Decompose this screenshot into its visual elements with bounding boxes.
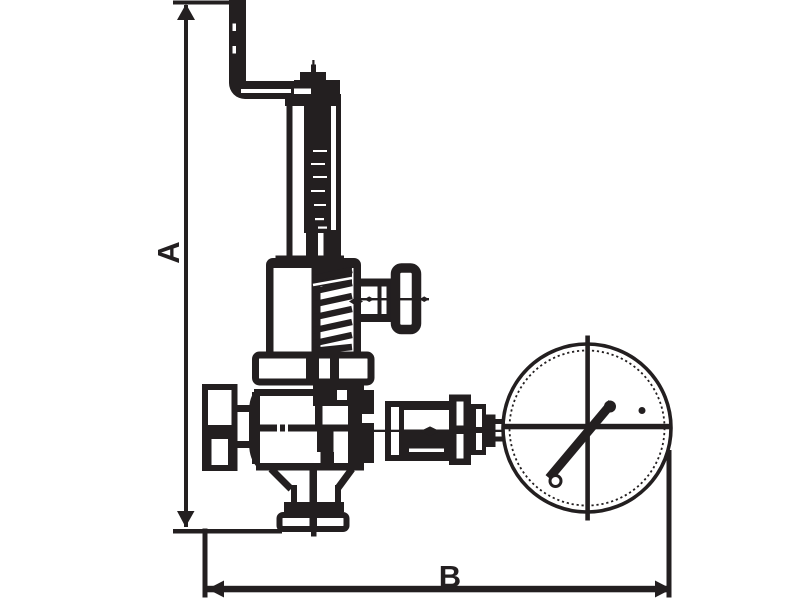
svg-text:B: B — [439, 559, 461, 594]
svg-text:A: A — [151, 241, 186, 263]
